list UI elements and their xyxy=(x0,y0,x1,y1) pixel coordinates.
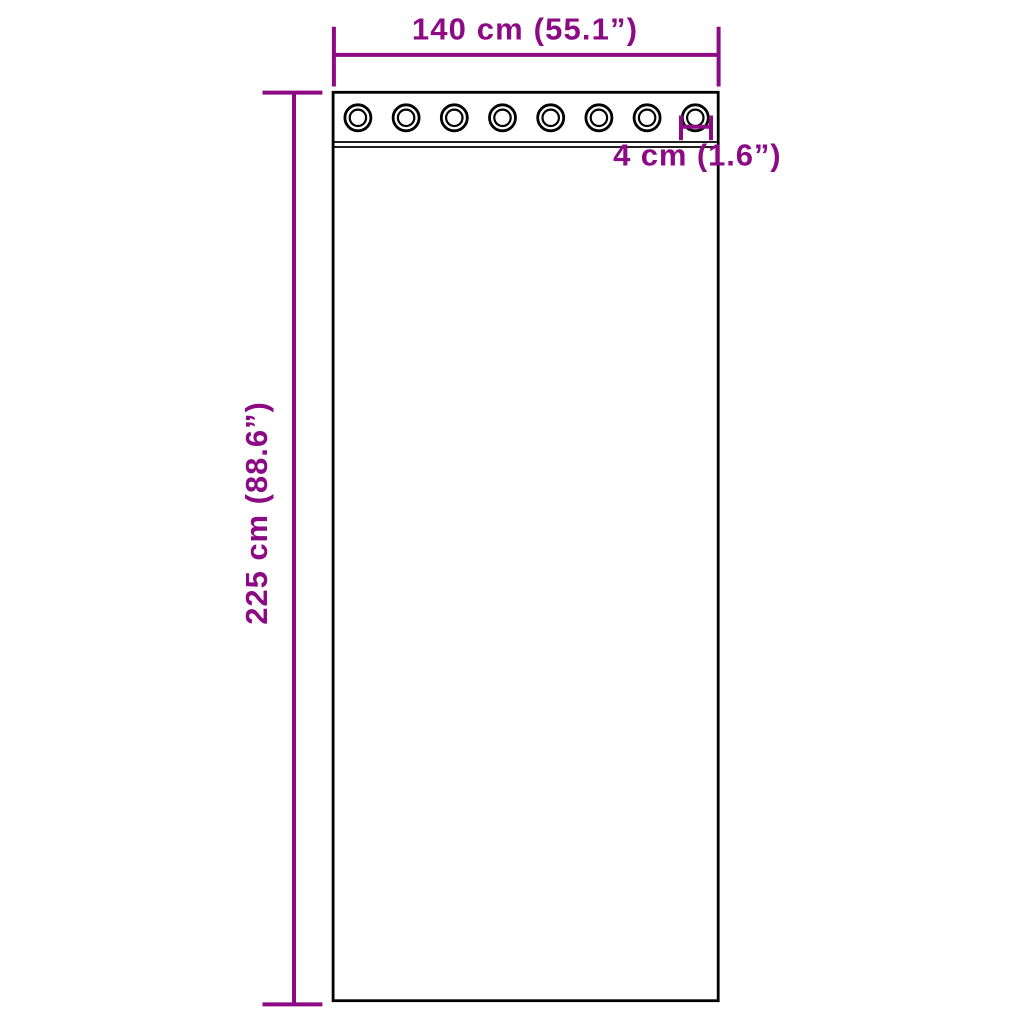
svg-text:4 cm (1.6”): 4 cm (1.6”) xyxy=(613,138,781,173)
svg-text:225 cm (88.6”): 225 cm (88.6”) xyxy=(239,401,274,625)
svg-text:140 cm (55.1”): 140 cm (55.1”) xyxy=(412,12,638,47)
